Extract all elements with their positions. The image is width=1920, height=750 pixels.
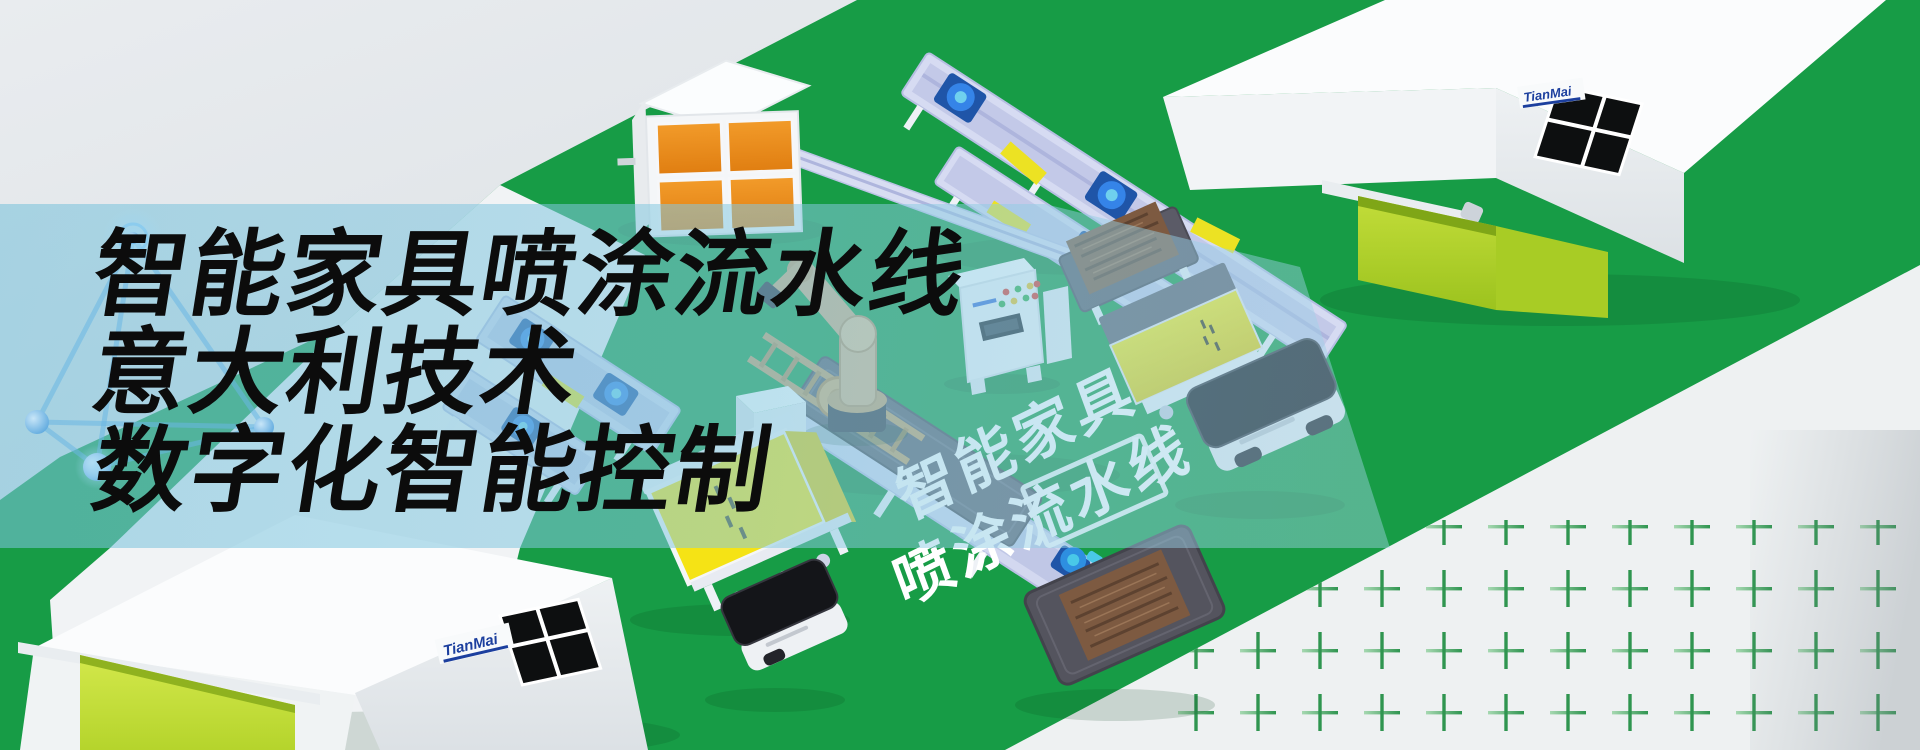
headline-line1: 智能家具喷涂流水线 [86, 226, 975, 324]
headline: 智能家具喷涂流水线 意大利技术 数字化智能控制 [86, 226, 959, 520]
booth-panel-orange [727, 119, 794, 172]
banner: TianMai TianMai [0, 0, 1920, 750]
headline-line2: 意大利技术 [86, 324, 975, 422]
headline-line3: 数字化智能控制 [86, 422, 975, 520]
corner-shade [1750, 430, 1920, 750]
booth-panel-orange [656, 122, 723, 175]
